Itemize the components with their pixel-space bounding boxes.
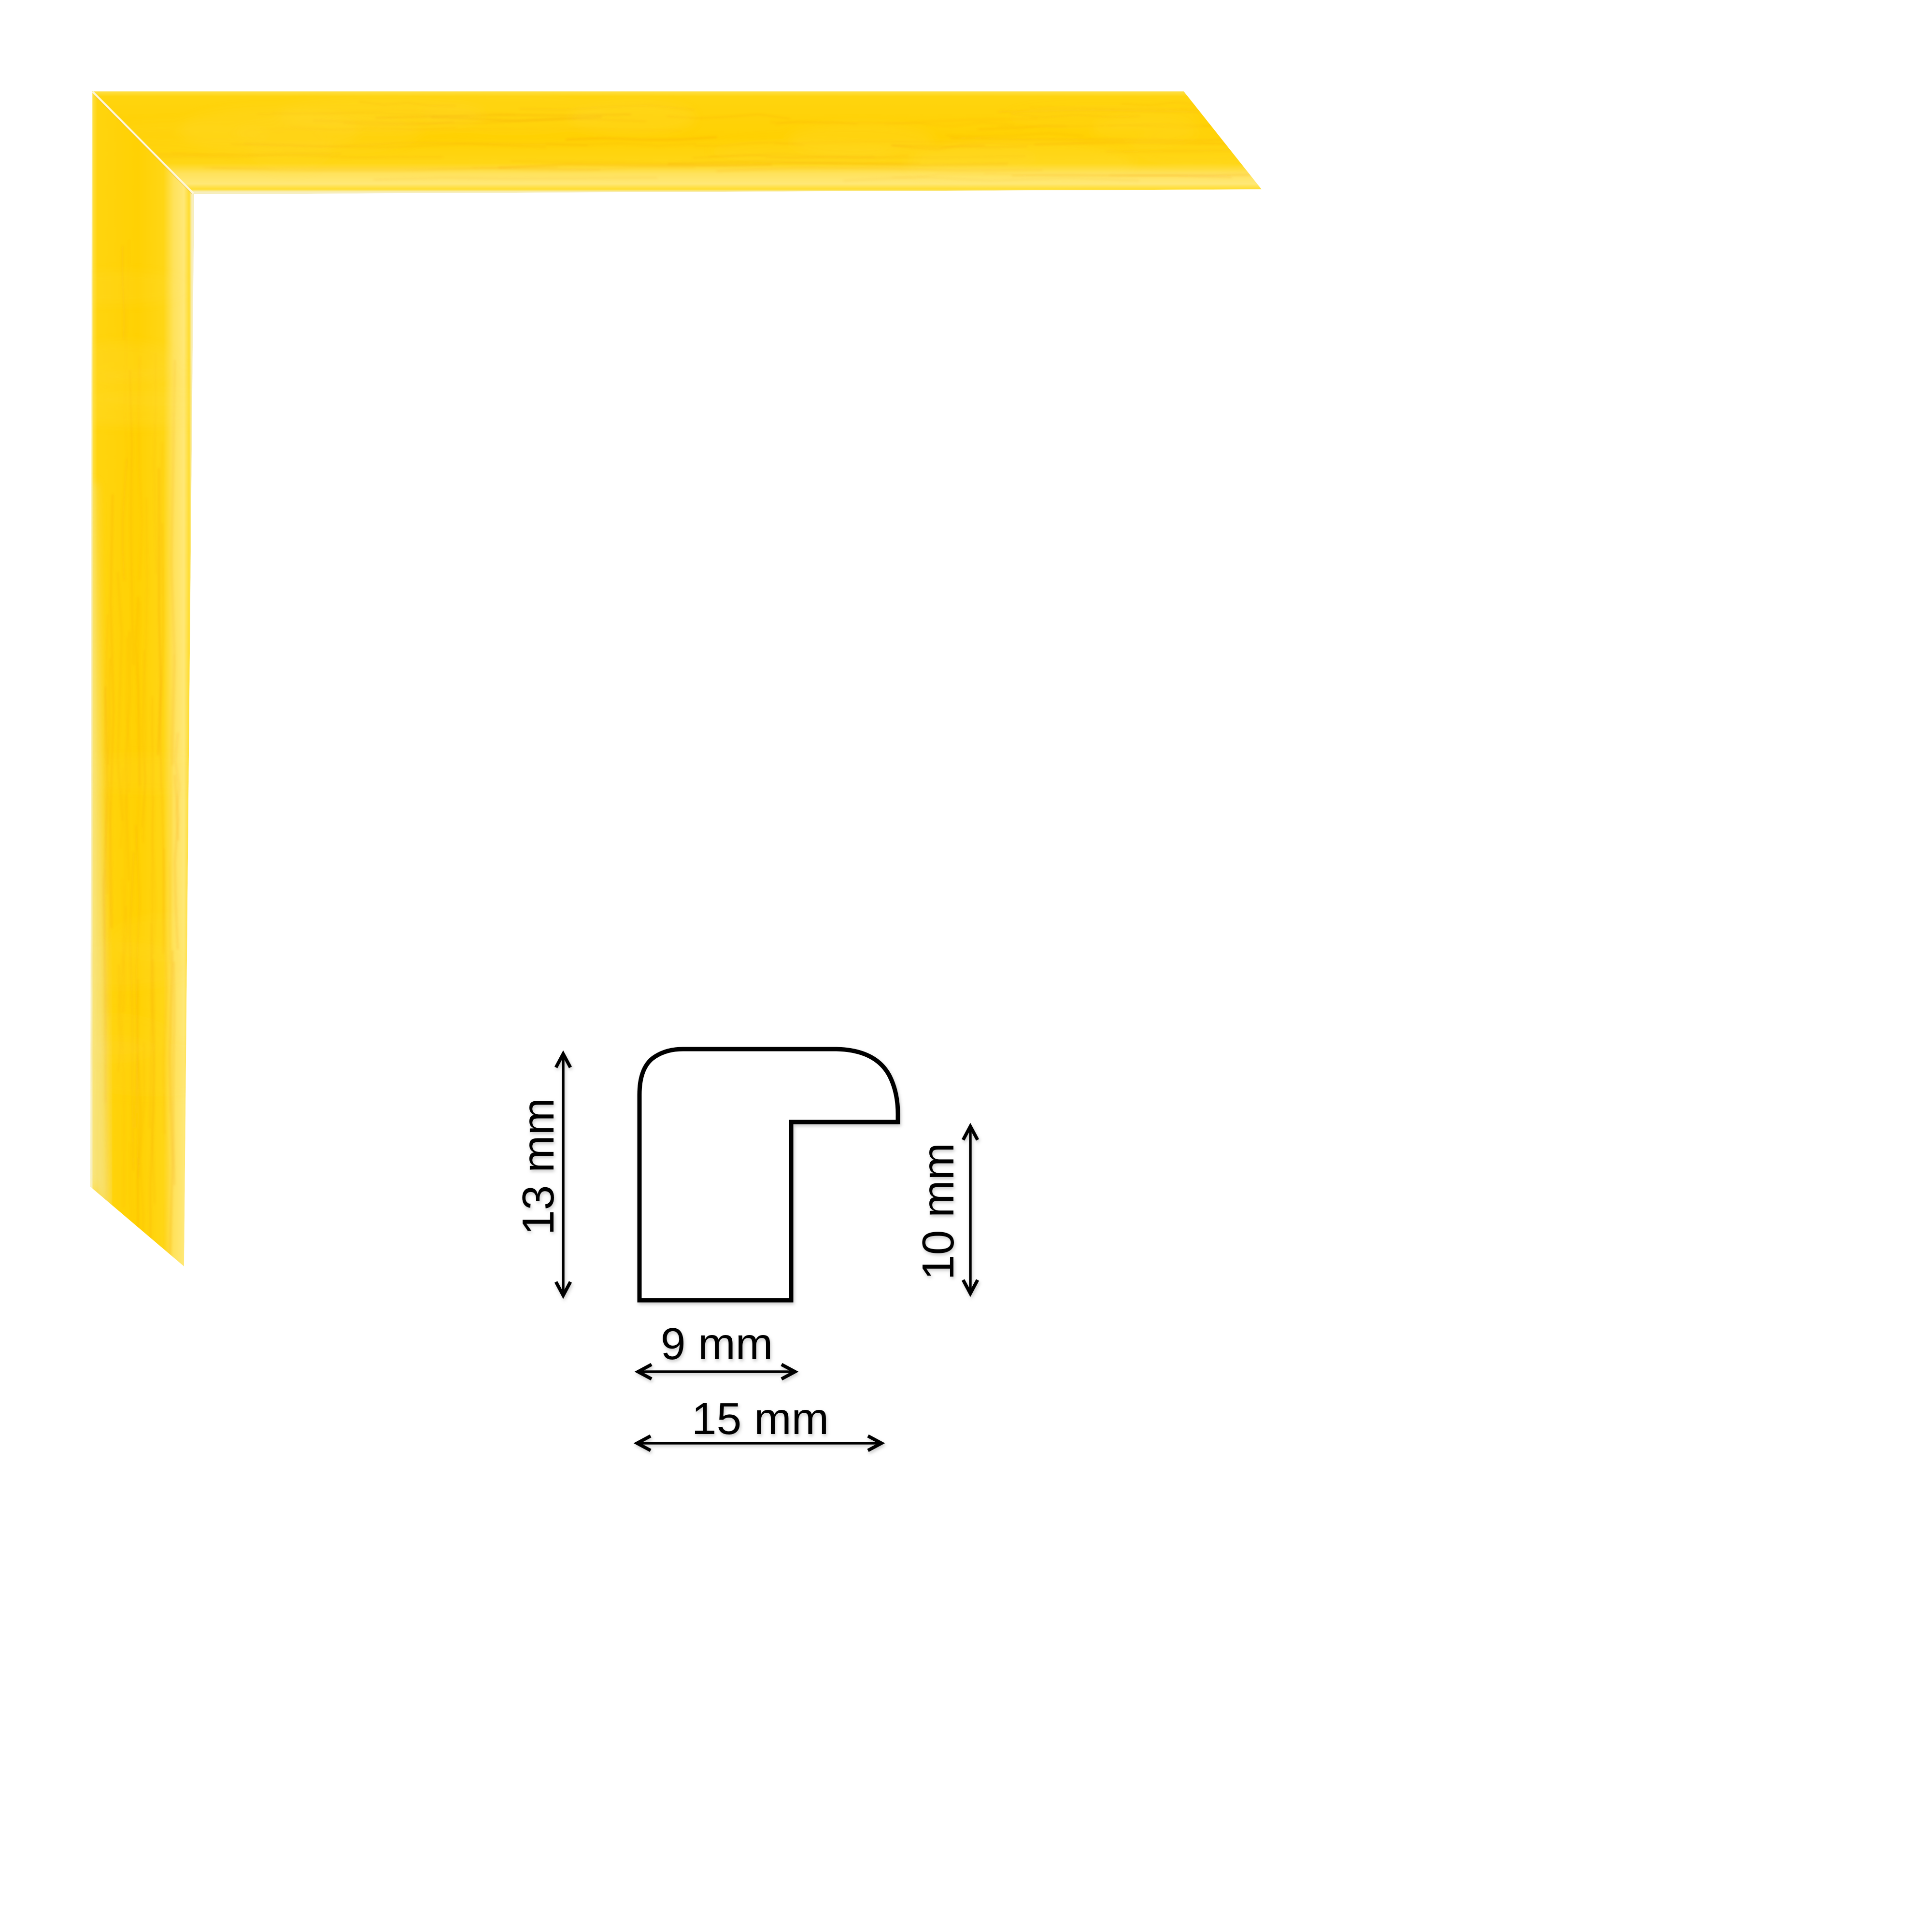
svg-text:9 mm: 9 mm bbox=[661, 1319, 773, 1369]
svg-text:13 mm: 13 mm bbox=[513, 1098, 563, 1235]
svg-text:10 mm: 10 mm bbox=[913, 1143, 963, 1280]
svg-text:15 mm: 15 mm bbox=[692, 1393, 829, 1444]
